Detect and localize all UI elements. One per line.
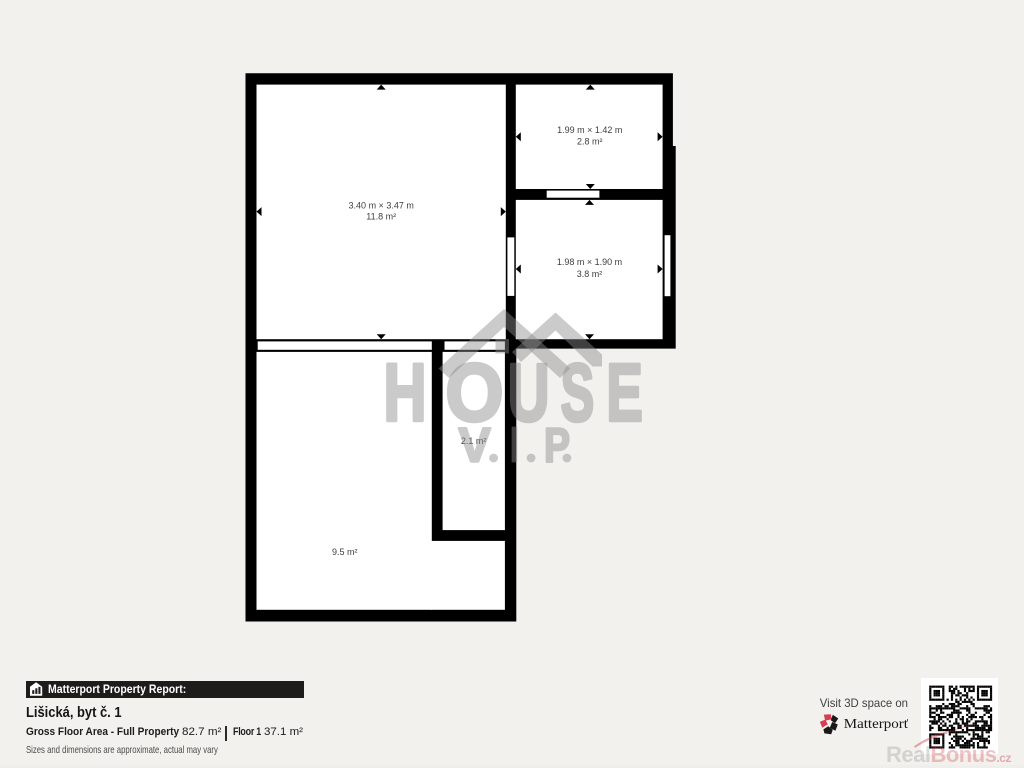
svg-text:E: E (606, 348, 642, 439)
svg-text:1.98 m × 1.90 m: 1.98 m × 1.90 m (557, 257, 622, 267)
svg-text:9.5 m²: 9.5 m² (332, 547, 358, 557)
svg-text:2.8 m²: 2.8 m² (577, 136, 603, 146)
svg-text:3.40 m × 3.47 m: 3.40 m × 3.47 m (349, 200, 414, 210)
svg-text:P: P (544, 419, 570, 472)
svg-text:H: H (384, 348, 427, 439)
svg-text:V: V (459, 419, 491, 472)
svg-text:1.99 m × 1.42 m: 1.99 m × 1.42 m (557, 125, 622, 135)
svg-text:11.8 m²: 11.8 m² (366, 212, 396, 222)
svg-text:3.8 m²: 3.8 m² (577, 269, 603, 279)
